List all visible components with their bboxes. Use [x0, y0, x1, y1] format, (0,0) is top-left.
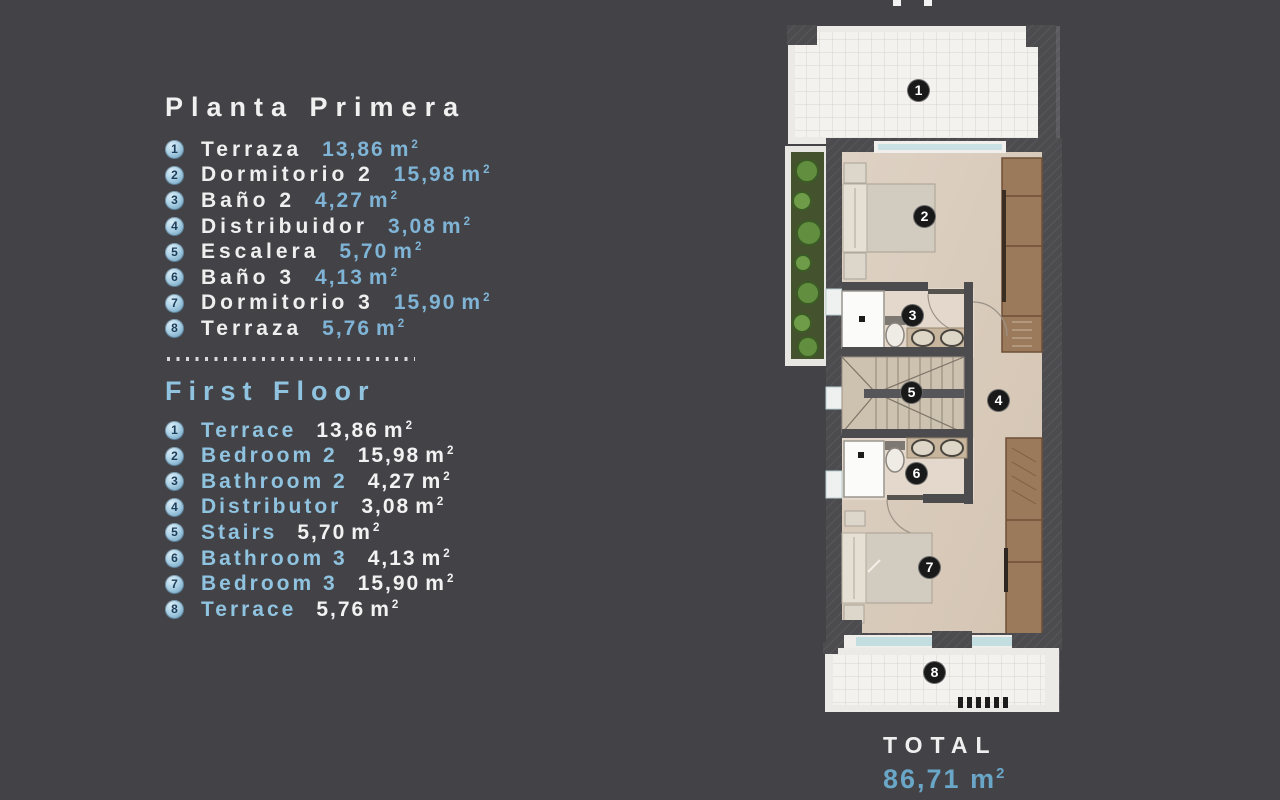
- room-number-badge: 5: [165, 523, 184, 542]
- room-number-badge: 8: [165, 319, 184, 338]
- room-area: 3,08m2: [361, 495, 445, 519]
- room-area: 4,13m2: [315, 266, 399, 290]
- room-name: Stairs: [201, 521, 277, 545]
- room-marker-4: 4: [987, 389, 1010, 412]
- first-floor-list: 1 Terrace 13,86m2 2 Bedroom 2 15,98m2 3 …: [165, 418, 745, 623]
- legend-row-bano-3: 6 Baño 3 4,13m2: [165, 265, 745, 291]
- room-area: 4,27m2: [368, 470, 452, 494]
- room-marker-1: 1: [907, 79, 930, 102]
- room-number-badge: 3: [165, 472, 184, 491]
- legend-row-dormitorio-2: 2 Dormitorio 2 15,98m2: [165, 163, 745, 189]
- legend-row-bedroom-2: 2 Bedroom 2 15,98m2: [165, 443, 745, 469]
- legend-row-distributor: 4 Distributor 3,08m2: [165, 495, 745, 521]
- room-number-badge: 6: [165, 549, 184, 568]
- room-number-badge: 4: [165, 217, 184, 236]
- legend-row-escalera: 5 Escalera 5,70m2: [165, 239, 745, 265]
- floor-plan: 1 2 3 4 5 6 7 8: [780, 0, 1070, 760]
- room-number-badge: 3: [165, 191, 184, 210]
- room-name: Distribuidor: [201, 215, 368, 239]
- room-name: Bedroom 3: [201, 572, 338, 596]
- room-number-badge: 8: [165, 600, 184, 619]
- room-area: 13,86m2: [322, 138, 420, 162]
- legend-row-bathroom-2: 3 Bathroom 2 4,27m2: [165, 469, 745, 495]
- room-number-badge: 7: [165, 294, 184, 313]
- room-name: Bathroom 2: [201, 470, 348, 494]
- room-area: 15,98m2: [358, 444, 456, 468]
- room-number-badge: 4: [165, 498, 184, 517]
- room-name: Dormitorio 3: [201, 291, 374, 315]
- total-label: TOTAL: [883, 732, 1006, 759]
- room-area: 15,90m2: [394, 291, 492, 315]
- room-number-badge: 1: [165, 140, 184, 159]
- total-value: 86,71 m2: [883, 764, 1006, 795]
- room-number-badge: 1: [165, 421, 184, 440]
- room-area: 15,98m2: [394, 163, 492, 187]
- room-name: Bathroom 3: [201, 547, 348, 571]
- room-marker-8: 8: [923, 661, 946, 684]
- legend-panel: Planta Primera 1 Terraza 13,86m2 2 Dormi…: [165, 94, 745, 623]
- room-area: 5,70m2: [297, 521, 381, 545]
- room-number-badge: 5: [165, 243, 184, 262]
- room-name: Escalera: [201, 240, 319, 264]
- legend-row-dormitorio-3: 7 Dormitorio 3 15,90m2: [165, 291, 745, 317]
- legend-row-bano-2: 3 Baño 2 4,27m2: [165, 188, 745, 214]
- room-area: 3,08m2: [388, 215, 472, 239]
- legend-row-terraza-1: 1 Terraza 13,86m2: [165, 137, 745, 163]
- room-name: Terraza: [201, 138, 302, 162]
- room-name: Terrace: [201, 598, 296, 622]
- room-number-badge: 2: [165, 166, 184, 185]
- room-marker-5: 5: [900, 381, 923, 404]
- room-name: Baño 2: [201, 189, 295, 213]
- room-name: Distributor: [201, 495, 341, 519]
- room-number-badge: 6: [165, 268, 184, 287]
- room-name: Bedroom 2: [201, 444, 338, 468]
- legend-row-bathroom-3: 6 Bathroom 3 4,13m2: [165, 546, 745, 572]
- floor-plan-drawing: [780, 0, 1070, 760]
- room-marker-2: 2: [913, 205, 936, 228]
- room-number-badge: 7: [165, 575, 184, 594]
- first-floor-title: First Floor: [165, 378, 745, 405]
- room-name: Terrace: [201, 419, 296, 443]
- room-marker-7: 7: [918, 556, 941, 579]
- dotted-divider: [167, 357, 415, 361]
- legend-row-terrace-8: 8 Terrace 5,76m2: [165, 597, 745, 623]
- legend-row-distribuidor: 4 Distribuidor 3,08m2: [165, 214, 745, 240]
- legend-row-terrace-1: 1 Terrace 13,86m2: [165, 418, 745, 444]
- room-area: 13,86m2: [316, 419, 414, 443]
- room-area: 5,76m2: [322, 317, 406, 341]
- room-name: Dormitorio 2: [201, 163, 374, 187]
- planta-primera-list: 1 Terraza 13,86m2 2 Dormitorio 2 15,98m2…: [165, 137, 745, 342]
- legend-row-bedroom-3: 7 Bedroom 3 15,90m2: [165, 571, 745, 597]
- room-area: 15,90m2: [358, 572, 456, 596]
- room-area: 5,70m2: [339, 240, 423, 264]
- room-number-badge: 2: [165, 447, 184, 466]
- room-area: 4,13m2: [368, 547, 452, 571]
- room-name: Terraza: [201, 317, 302, 341]
- total-block: TOTAL 86,71 m2: [883, 732, 1006, 795]
- room-marker-3: 3: [901, 304, 924, 327]
- legend-row-stairs: 5 Stairs 5,70m2: [165, 520, 745, 546]
- room-name: Baño 3: [201, 266, 295, 290]
- room-area: 4,27m2: [315, 189, 399, 213]
- planta-primera-title: Planta Primera: [165, 94, 745, 121]
- room-marker-6: 6: [905, 462, 928, 485]
- room-area: 5,76m2: [316, 598, 400, 622]
- legend-row-terraza-8: 8 Terraza 5,76m2: [165, 316, 745, 342]
